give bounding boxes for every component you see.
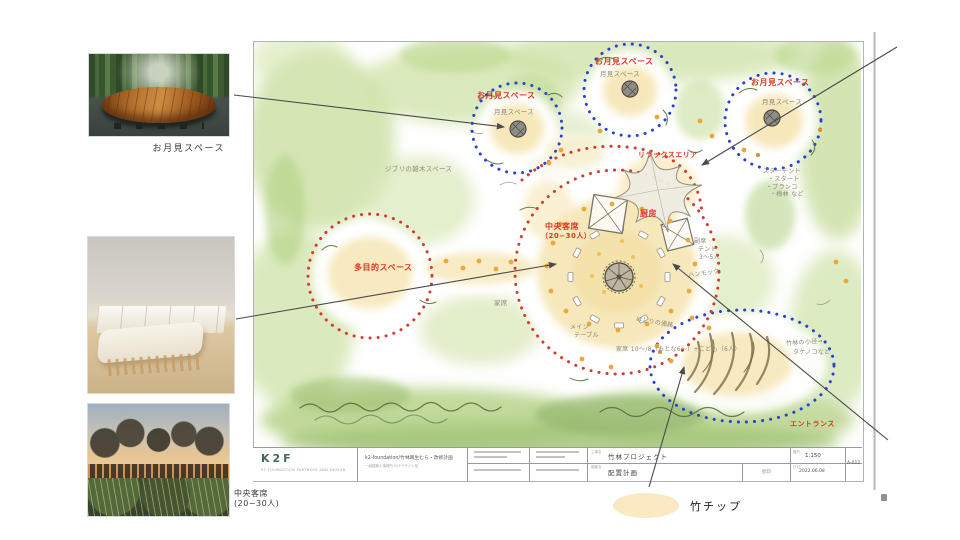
titleblock-logo-cell: K2F K2 FOUNDATION PARTNERS AND DESIGN (253, 448, 358, 481)
bamboo-chips-swatch (613, 493, 679, 518)
illegible-text-bar (474, 469, 521, 471)
scale-micro-label: 縮尺 (793, 450, 800, 455)
label-entrance: エントランス (790, 419, 835, 429)
note-side-seat-capacity: 3〜5人 (699, 252, 720, 261)
stray-mark (881, 494, 887, 501)
tree-silhouettes (88, 411, 229, 469)
note-moon-space-2: 月見スペース (600, 68, 640, 78)
photo3-caption-line1: 中央客席 (234, 489, 268, 498)
project-name-micro-label: 工事名 (591, 450, 602, 455)
photo-beach-banquet (87, 236, 235, 394)
project-name: 竹林プロジェクト (608, 451, 668, 461)
k2f-logo: K2F (261, 452, 357, 465)
label-multipurpose-space: 多目的スペース (354, 262, 413, 273)
photo-moon-viewing-deck (88, 53, 230, 137)
photo-evening-gathering (87, 403, 230, 517)
label-relax-area: リラックスエリア (638, 150, 698, 160)
titleblock-client-cell: k2-foundation/竹林再生むら・改修計画 一級建築士事務所 K2Fデザ… (358, 448, 468, 481)
illegible-text-bar (474, 451, 521, 453)
drawing-name: 配置計画 (608, 467, 638, 477)
note-family-seat: 家席 (494, 297, 508, 307)
k2f-logo-tagline: K2 FOUNDATION PARTNERS AND DESIGN (261, 468, 357, 472)
illegible-text-bar (536, 456, 565, 458)
foreground-bushes (88, 478, 229, 516)
note-thicket-space: ジブリの雑木スペース (385, 163, 452, 173)
label-moon-space-2: お月見スペース (595, 56, 654, 67)
note-seat-count: 家席 10〜/8（おとな6〜）+こども（6人） (616, 344, 741, 353)
label-central-seating-capacity: （20−30人） (541, 231, 591, 241)
label-kitchen: 厨房 (640, 208, 657, 219)
date-value: 2022.06.08 (799, 469, 825, 474)
round-wood-deck (102, 87, 217, 123)
title-block: K2F K2 FOUNDATION PARTNERS AND DESIGN k2… (253, 447, 862, 481)
illegible-text-bar (536, 451, 579, 453)
bamboo-chips-label: 竹チップ (690, 498, 742, 514)
illegible-text-bar (474, 456, 507, 458)
photo3-caption: 中央客席 (20−30人) (234, 489, 279, 509)
note-main-table: テーブル (574, 330, 599, 339)
photo1-caption: お月見スペース (88, 141, 225, 154)
label-moon-space-3: お月見スペース (751, 77, 810, 88)
client-name: k2-foundation/竹林再生むら・改修計画 (365, 454, 467, 461)
photo3-caption-line2: (20−30人) (234, 499, 279, 508)
titleblock-notes-cell-1 (468, 448, 530, 481)
deck-legs (114, 123, 204, 129)
scale-value: 1:150 (805, 453, 821, 459)
drawing-name-micro-label: 図面名 (591, 465, 602, 470)
note-moon-space-3: 月見スペース (762, 96, 802, 106)
note-bamboo-shoots: タケノコなど (793, 347, 830, 356)
illegible-text-bar (536, 469, 579, 471)
client-office: 一級建築士事務所 K2Fデザイン室 (365, 464, 467, 469)
titleblock-notes-cell-2 (530, 448, 588, 481)
note-moon-space-1: 月見スペース (494, 106, 534, 116)
note-star-item-3: ・梅林 など (770, 189, 804, 198)
drawing-number: A-012 (847, 461, 860, 466)
site-plan-sheet (253, 41, 864, 482)
slide-canvas: お月見スペース 中央客席 (20−30人) K2F K2 FOUNDATION … (0, 0, 960, 540)
label-moon-space-1: お月見スペース (477, 90, 536, 101)
stamp-cell: 捺印 (742, 463, 790, 481)
